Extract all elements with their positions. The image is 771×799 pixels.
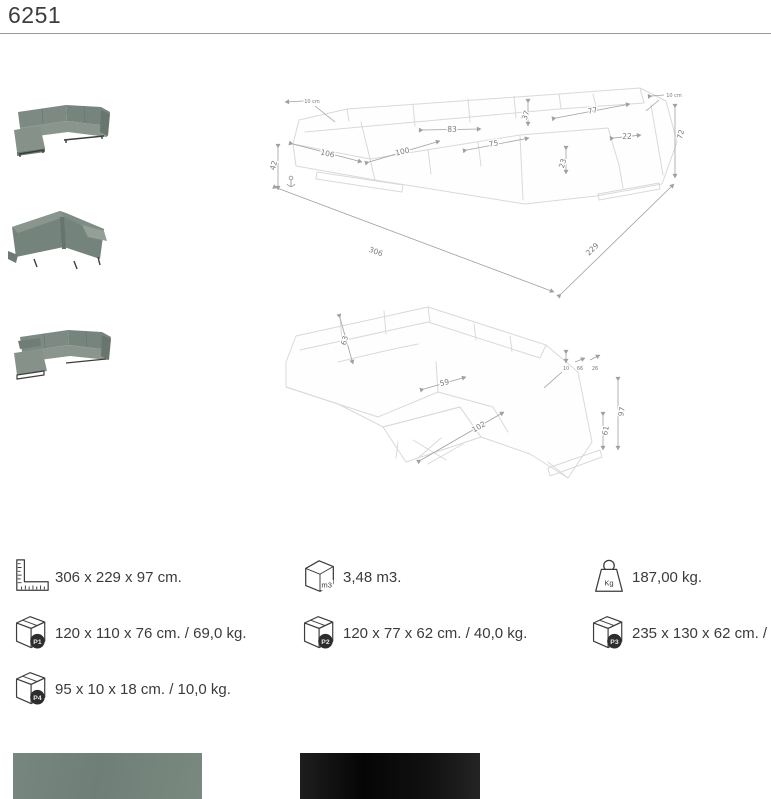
sofa-thumbnail-angle[interactable]: [4, 311, 126, 383]
package-badge: P1: [33, 639, 42, 646]
sofa-angle-image: [4, 311, 126, 383]
dim-right-back-width: 77: [587, 105, 598, 116]
fabric-swatch-black[interactable]: [300, 753, 480, 799]
dim-right-seat-front: 75: [488, 138, 499, 149]
dim-headrest-right: 10 cm: [666, 93, 682, 99]
sofa-thumbnail-back[interactable]: [4, 197, 126, 283]
spec-package-3: P3 235 x 130 x 62 cm. / 83,0 kg.: [590, 613, 771, 653]
spec-package-1: P1 120 x 110 x 76 cm. / 69,0 kg.: [13, 613, 247, 653]
sofa-back-image: [4, 197, 126, 283]
package-box-icon: P1: [13, 613, 51, 653]
package-box-icon: P2: [301, 613, 339, 653]
sofa-thumbnail-front[interactable]: [4, 90, 126, 162]
header-divider: [0, 33, 771, 34]
package-box-icon: P3: [590, 613, 628, 653]
package-badge: P3: [610, 639, 619, 646]
dim-corner-back-width: 83: [447, 125, 457, 134]
page-title: 6251: [8, 2, 61, 29]
dimension-diagram-open: 63 59 102 97 61 10 66 26: [278, 292, 644, 503]
overall-dimensions-text: 306 x 229 x 97 cm.: [55, 569, 182, 586]
package-badge: P4: [33, 695, 42, 702]
package-box-icon: P4: [13, 669, 51, 709]
spec-weight: Kg 187,00 kg.: [590, 557, 702, 597]
package-3-text: 235 x 130 x 62 cm. / 83,0 kg.: [632, 625, 771, 642]
ruler-square-icon: [13, 557, 51, 597]
weight-text: 187,00 kg.: [632, 569, 702, 586]
sofa-front-image: [4, 90, 126, 162]
dim-inset-b: 66: [577, 366, 583, 372]
dim-height-total: 72: [675, 128, 686, 140]
cube-m3-label: m3: [321, 580, 332, 589]
package-badge: P2: [321, 639, 330, 646]
spec-package-2: P2 120 x 77 x 62 cm. / 40,0 kg.: [301, 613, 527, 653]
package-1-text: 120 x 110 x 76 cm. / 69,0 kg.: [55, 625, 247, 642]
dim-arm-width: 22: [622, 132, 632, 141]
dim-inset-c: 26: [592, 366, 598, 372]
weight-kg-icon: Kg: [590, 557, 628, 597]
fabric-swatch-green-grey[interactable]: [13, 753, 202, 799]
dim-footrest-height: 61: [600, 425, 611, 436]
weight-kg-label: Kg: [604, 579, 613, 588]
spec-overall-dimensions: 306 x 229 x 97 cm.: [13, 557, 182, 597]
dim-inset-a: 10: [563, 366, 569, 372]
volume-text: 3,48 m3.: [343, 569, 401, 586]
dim-height-headrest-up: 97: [616, 406, 627, 417]
package-2-text: 120 x 77 x 62 cm. / 40,0 kg.: [343, 625, 527, 642]
dimension-diagram-closed: 10 cm 83 37 77 22 10 cm 72 106 100 75 23…: [263, 80, 703, 307]
floor-anchor-icon: [287, 176, 295, 187]
cube-m3-icon: m3: [301, 557, 339, 597]
dim-length-total: 306: [368, 245, 385, 258]
spec-package-4: P4 95 x 10 x 18 cm. / 10,0 kg.: [13, 669, 231, 709]
spec-volume: m3 3,48 m3.: [301, 557, 401, 597]
dim-depth-total: 229: [584, 241, 601, 258]
package-4-text: 95 x 10 x 18 cm. / 10,0 kg.: [55, 681, 231, 698]
dim-seat-height: 42: [268, 159, 279, 171]
product-sheet: 6251: [0, 0, 771, 799]
dim-headrest-left: 10 cm: [304, 99, 320, 105]
